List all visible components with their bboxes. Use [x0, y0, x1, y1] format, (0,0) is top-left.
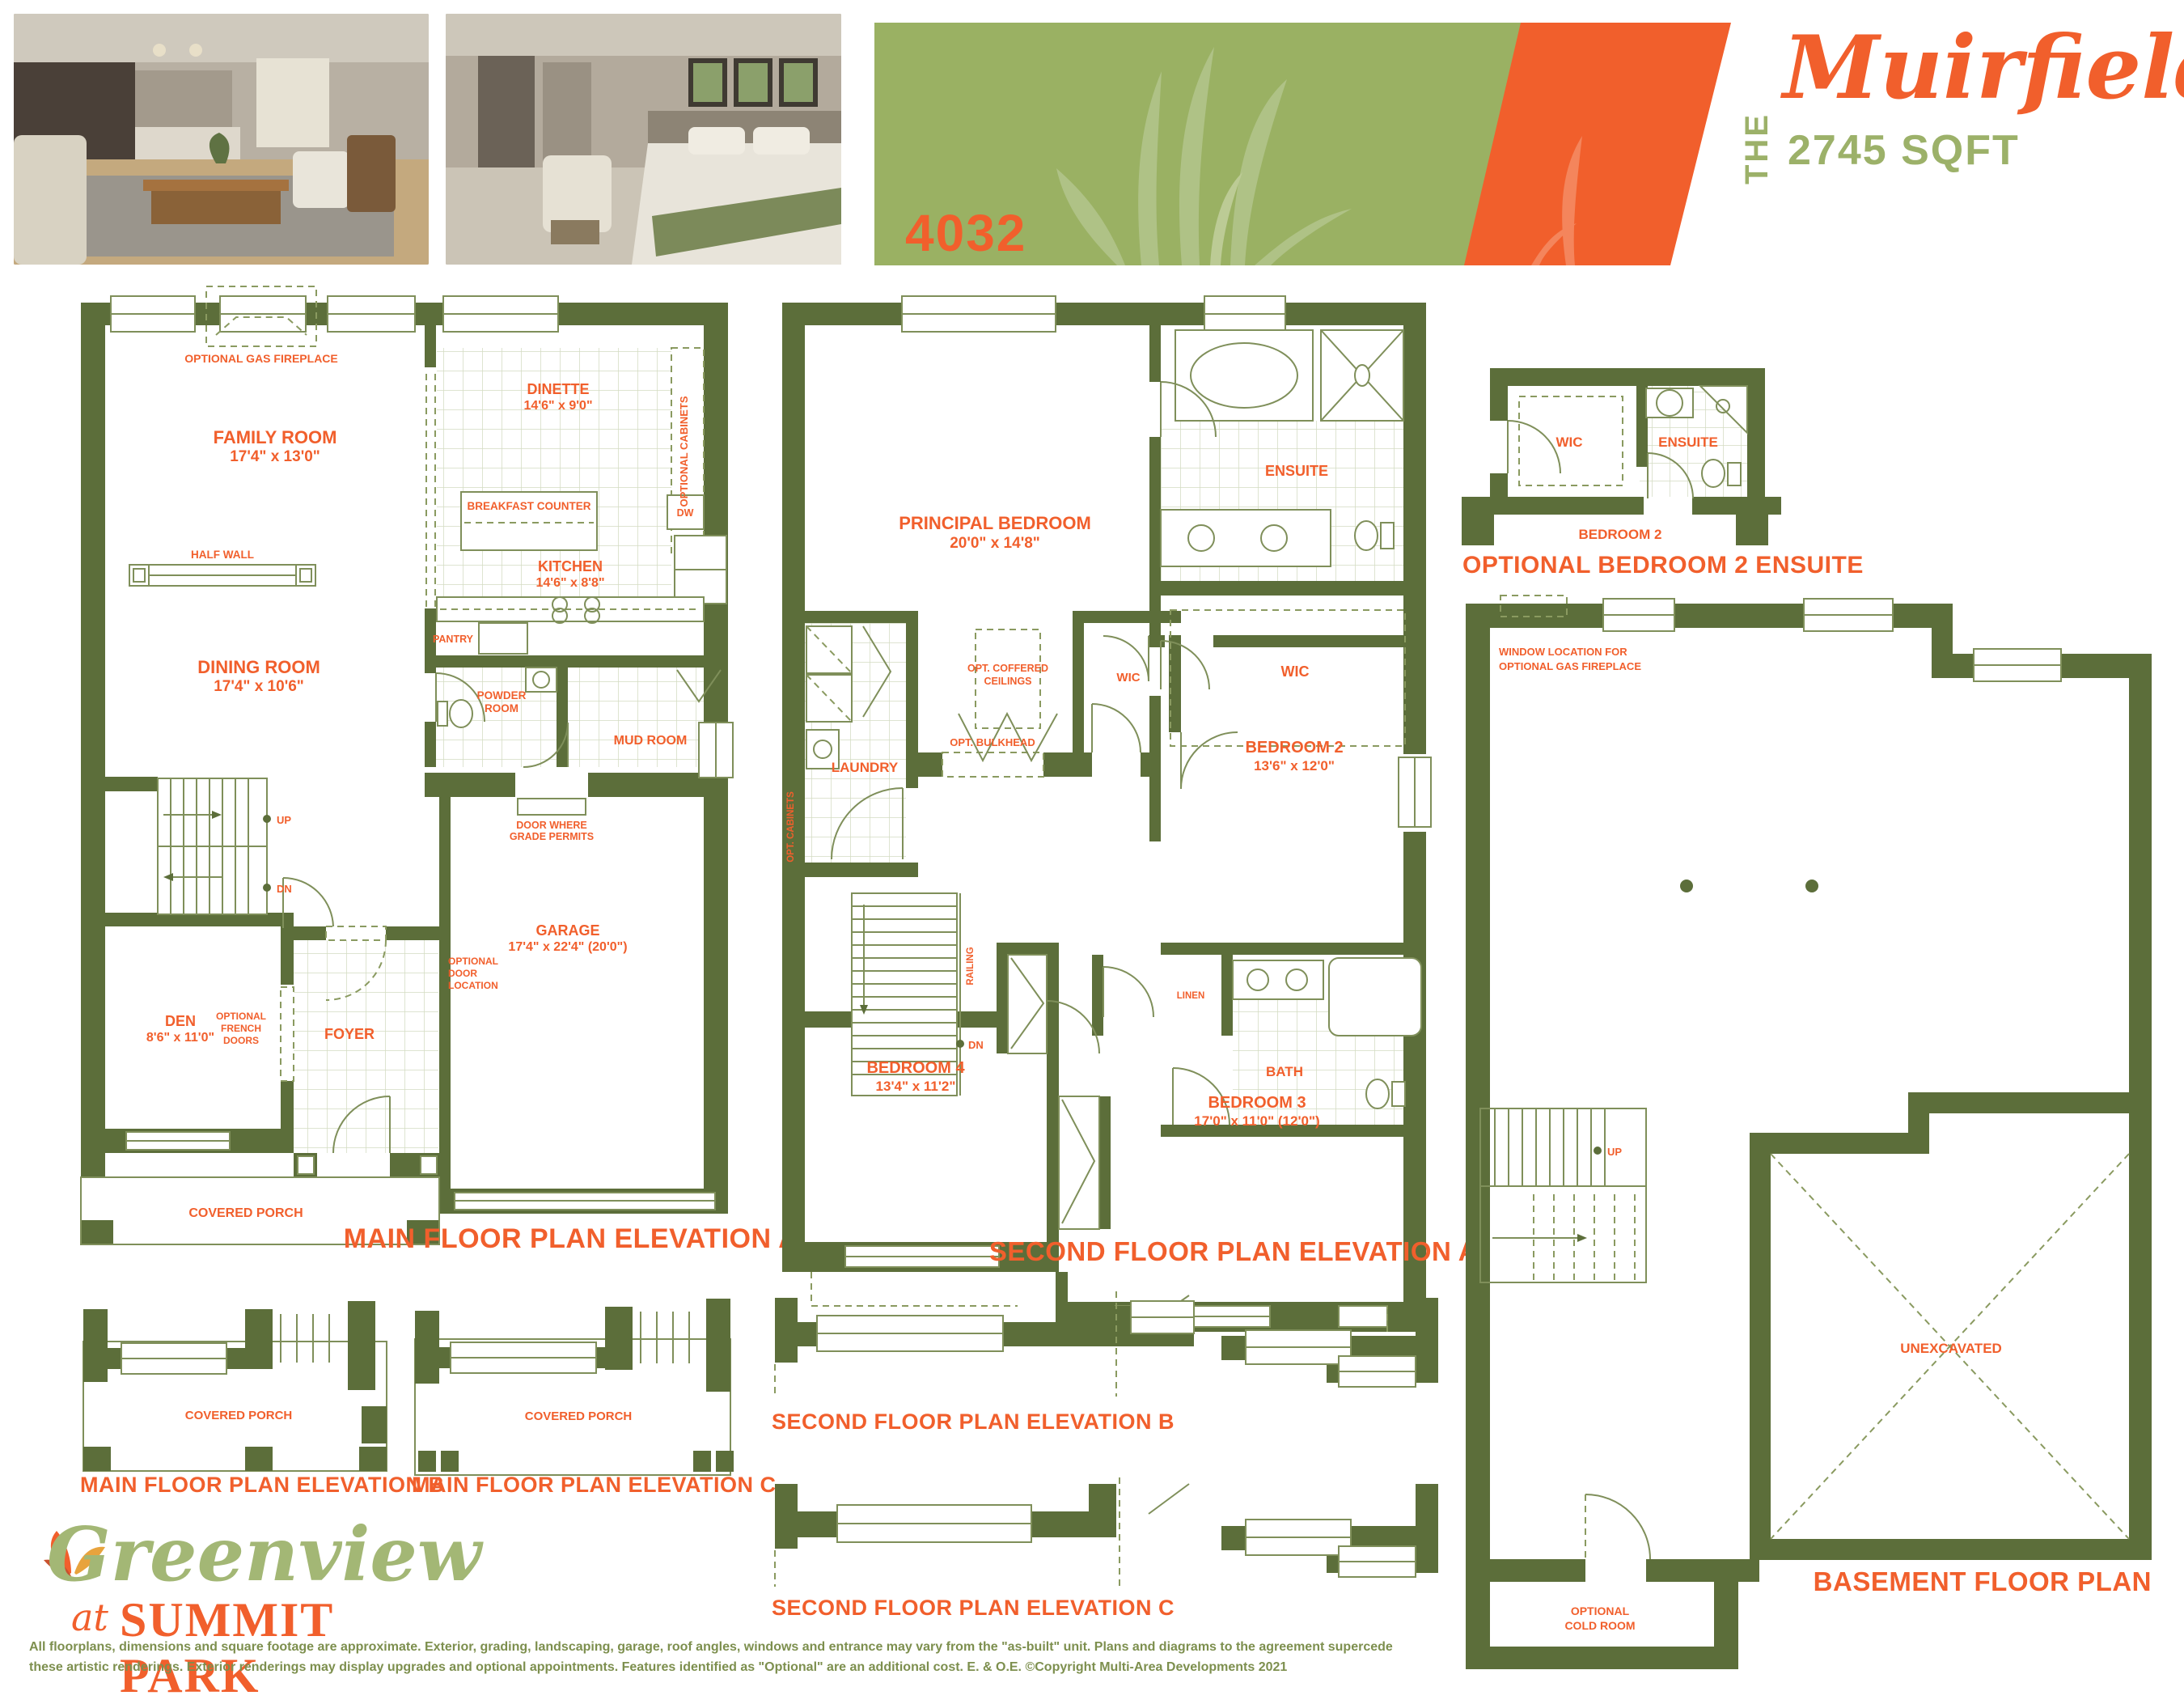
second-floor-plan-a: PRINCIPAL BEDROOM 20'0" x 14'8" ENSUITE …	[772, 293, 1444, 1312]
ensuite-label: ENSUITE	[1265, 463, 1328, 479]
door-grade-label-2: GRADE PERMITS	[510, 831, 594, 842]
banner: 4032	[874, 23, 1732, 265]
opt-french-3: DOORS	[223, 1035, 259, 1046]
dinette-label: DINETTE	[527, 381, 589, 397]
dining-room-label: DINING ROOM	[197, 657, 320, 677]
half-wall-label: HALF WALL	[191, 549, 254, 561]
unexcavated-label: UNEXCAVATED	[1900, 1341, 2002, 1356]
windows	[451, 1312, 689, 1373]
cold-room-label-1: OPTIONAL	[1571, 1604, 1630, 1617]
second-floor-plan-c: SECOND FLOOR PLAN ELEVATION C	[768, 1477, 1448, 1627]
second-floor-b-title: SECOND FLOOR PLAN ELEVATION B	[772, 1409, 1175, 1434]
principal-bedroom-dims: 20'0" x 14'8"	[950, 535, 1040, 552]
window-note-1: WINDOW LOCATION FOR	[1499, 646, 1627, 658]
bath-label: BATH	[1266, 1064, 1303, 1079]
optional-gas-fireplace-label: OPTIONAL GAS FIREPLACE	[184, 352, 338, 365]
basement-floor-plan: WINDOW LOCATION FOR OPTIONAL GAS FIREPLA…	[1456, 599, 2168, 1675]
wic-label: WIC	[1281, 663, 1310, 680]
bedroom4-label: BEDROOM 4	[866, 1059, 965, 1077]
bedroom-photo-art	[446, 14, 841, 265]
dn-label: DN	[277, 883, 292, 895]
dining-room-dims: 17'4" x 10'6"	[214, 678, 304, 695]
dw-label: DW	[677, 507, 694, 519]
window-note-2: OPTIONAL GAS FIREPLACE	[1499, 660, 1641, 672]
walls	[415, 1299, 734, 1475]
bedroom2-label: BEDROOM 2	[1579, 527, 1662, 542]
cold-room-label-2: COLD ROOM	[1564, 1619, 1635, 1632]
title-block: THE Muirfield 2745 SQFT	[1741, 24, 2178, 202]
bedroom2-dims: 13'6" x 12'0"	[1254, 758, 1335, 774]
laundry-label: LAUNDRY	[832, 760, 899, 775]
wic2-label: WIC	[1116, 671, 1140, 685]
walls	[1466, 604, 2152, 1669]
ensuite-label: ENSUITE	[1658, 434, 1718, 450]
den-label: DEN	[165, 1013, 196, 1029]
up-label: UP	[1607, 1146, 1622, 1158]
optional-ensuite-title: OPTIONAL BEDROOM 2 ENSUITE	[1462, 552, 1864, 579]
opt-french-2: FRENCH	[221, 1023, 261, 1034]
disclaimer-line-1: All floorplans, dimensions and square fo…	[29, 1638, 1162, 1658]
second-floor-plan-b: SECOND FLOOR PLAN ELEVATION B	[768, 1291, 1448, 1441]
railing-label: RAILING	[966, 947, 976, 985]
floorplan-sheet: { "header": { "model_number": "4032", "s…	[0, 0, 2184, 1682]
walls	[83, 1301, 387, 1471]
disclaimer-line-2: these artistic renderings. Exterior rend…	[29, 1658, 1162, 1678]
main-floor-plan-c: COVERED PORCH MAIN FLOOR PLAN ELEVATION …	[408, 1282, 744, 1497]
opt-door-3: LOCATION	[448, 980, 498, 991]
main-floor-b-title: MAIN FLOOR PLAN ELEVATION B	[80, 1473, 444, 1497]
opt-coffered-1: OPT. COFFERED	[967, 663, 1048, 674]
bedroom3-label: BEDROOM 3	[1208, 1094, 1306, 1112]
linen-label: LINEN	[1177, 991, 1205, 1001]
opt-door-2: DOOR	[448, 968, 477, 979]
bedroom2-door	[1181, 732, 1238, 789]
mud-room-label: MUD ROOM	[614, 734, 688, 748]
sqft-label: 2745 SQFT	[1788, 126, 2020, 175]
disclaimer: All floorplans, dimensions and square fo…	[29, 1638, 1162, 1678]
covered-porch-label: COVERED PORCH	[188, 1206, 303, 1220]
den-dims: 8'6" x 11'0"	[146, 1031, 214, 1045]
dinette-dims: 14'6" x 9'0"	[523, 399, 592, 413]
garage-dims: 17'4" x 22'4" (20'0")	[508, 940, 627, 954]
stairs	[158, 778, 271, 914]
family-room-label: FAMILY ROOM	[214, 427, 337, 447]
kitchen-dims: 14'6" x 8'8"	[535, 576, 604, 590]
bedroom2-label: BEDROOM 2	[1245, 739, 1343, 757]
second-floor-a-title: SECOND FLOOR PLAN ELEVATION A	[989, 1236, 1478, 1266]
dn-label: DN	[968, 1039, 984, 1051]
breakfast-counter-label: BREAKFAST COUNTER	[467, 500, 590, 512]
powder-room-label-2: ROOM	[485, 702, 518, 714]
series-name: Muirfield	[1783, 24, 2184, 112]
door-grade-label-1: DOOR WHERE	[516, 820, 587, 831]
model-number: 4032	[905, 204, 1026, 262]
foyer-label: FOYER	[324, 1026, 375, 1042]
cold-room-door	[1585, 1494, 1650, 1559]
kitchen-label: KITCHEN	[538, 558, 603, 574]
living-room-photo	[14, 14, 429, 265]
main-floor-plan-a: OPTIONAL GAS FIREPLACE	[74, 293, 770, 1264]
opt-bulkhead-label: OPT. BULKHEAD	[950, 736, 1035, 748]
wic-label: WIC	[1555, 434, 1582, 450]
bedroom3-dims: 17'0" x 11'0" (12'0")	[1194, 1113, 1319, 1129]
covered-porch-label: COVERED PORCH	[185, 1409, 293, 1422]
up-label: UP	[277, 814, 291, 826]
stairs	[1480, 1108, 1646, 1282]
bedroom4-dims: 13'4" x 11'2"	[876, 1079, 956, 1094]
opt-coffered-2: CEILINGS	[984, 676, 1031, 687]
logo-script-name: Greenview	[47, 1521, 481, 1588]
covered-porch-label: COVERED PORCH	[525, 1409, 633, 1423]
opt-cabinets-label: OPT. CABINETS	[786, 791, 796, 863]
banner-art: 4032	[874, 23, 1732, 265]
pantry-label: PANTRY	[433, 634, 474, 645]
logo-at: at	[71, 1596, 108, 1639]
optional-cabinets-label: OPTIONAL CABINETS	[678, 396, 690, 507]
family-room-dims: 17'4" x 13'0"	[230, 448, 320, 465]
main-floor-plan-b: COVERED PORCH MAIN FLOOR PLAN ELEVATION …	[77, 1285, 400, 1497]
opt-door-1: OPTIONAL	[448, 956, 498, 967]
living-room-photo-art	[14, 14, 429, 265]
bedroom-photo	[446, 14, 841, 265]
principal-bedroom-label: PRINCIPAL BEDROOM	[899, 513, 1091, 533]
opt-french-1: OPTIONAL	[216, 1011, 266, 1022]
garage-label: GARAGE	[535, 922, 599, 939]
columns	[1680, 880, 1818, 892]
main-floor-a-title: MAIN FLOOR PLAN ELEVATION A	[344, 1223, 799, 1254]
powder-room-label-1: POWDER	[477, 689, 527, 702]
optional-bedroom2-ensuite-plan: WIC ENSUITE BEDROOM 2 OPTIONAL BEDROOM 2…	[1456, 356, 1788, 591]
second-floor-c-title: SECOND FLOOR PLAN ELEVATION C	[772, 1596, 1175, 1620]
half-wall-drawing	[129, 565, 315, 586]
basement-title: BASEMENT FLOOR PLAN	[1814, 1566, 2152, 1596]
principal-door	[1092, 704, 1141, 752]
windows	[121, 1314, 329, 1374]
main-floor-c-title: MAIN FLOOR PLAN ELEVATION C	[412, 1473, 776, 1497]
series-prefix: THE	[1741, 39, 1773, 184]
